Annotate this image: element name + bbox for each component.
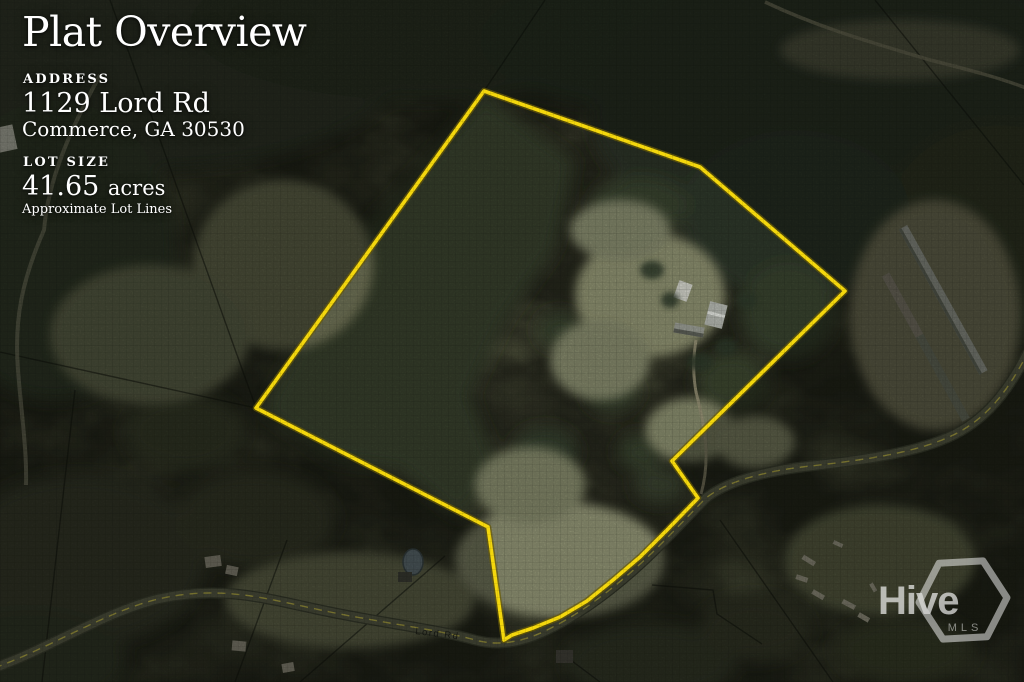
lot-size-unit: acres xyxy=(108,176,166,200)
lot-size-line: 41.65 acres xyxy=(22,173,306,201)
logo-subtext: MLS xyxy=(948,622,983,634)
info-panel: Plat Overview ADDRESS 1129 Lord Rd Comme… xyxy=(22,10,306,218)
lot-size-label: LOT SIZE xyxy=(23,155,306,170)
plat-overview-image: Lord Rd xyxy=(0,0,1024,682)
logo-text: Hive xyxy=(878,579,959,623)
address-street: 1129 Lord Rd xyxy=(22,90,306,118)
address-city-state-zip: Commerce, GA 30530 xyxy=(22,118,306,140)
lot-size-value: 41.65 xyxy=(22,171,99,202)
address-label: ADDRESS xyxy=(23,72,306,87)
lot-size-note: Approximate Lot Lines xyxy=(22,202,306,218)
hive-mls-logo: Hive MLS xyxy=(868,554,1018,658)
page-title: Plat Overview xyxy=(22,10,306,55)
